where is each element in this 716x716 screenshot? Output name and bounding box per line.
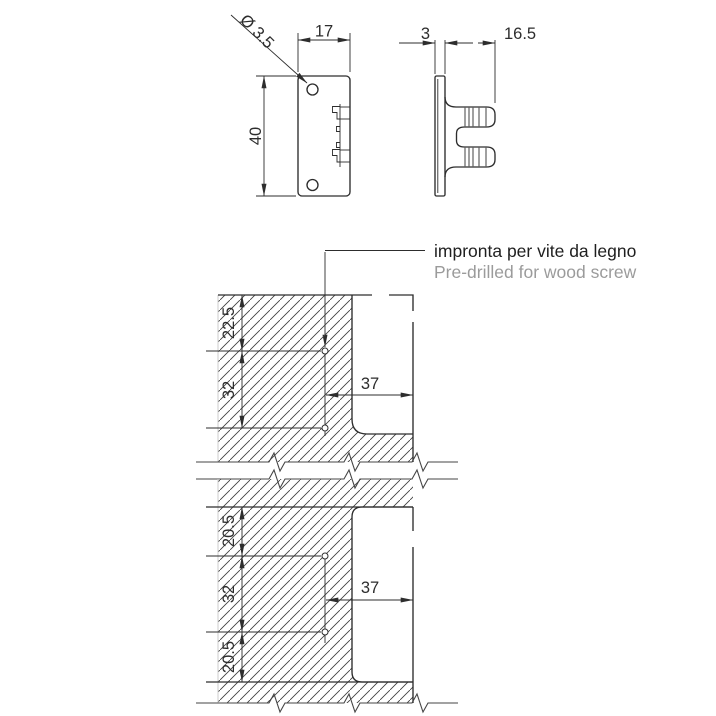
front-height-dimension: 40 xyxy=(247,76,296,196)
side-view: 3 16.5 xyxy=(399,25,536,196)
side-thickness-dimension: 3 xyxy=(399,25,473,74)
section-top-hatch xyxy=(218,295,413,462)
front-bottom-hole xyxy=(307,180,318,191)
screw-note-english: Pre-drilled for wood screw xyxy=(434,262,637,282)
section-top-cavity-outline xyxy=(352,295,413,434)
side-prongs-outline xyxy=(445,97,495,177)
front-body-outline xyxy=(298,76,350,196)
front-hole-label: Ø 3.5 xyxy=(236,11,277,52)
drawing-canvas: 17 40 Ø 3.5 xyxy=(0,0,716,716)
screw-imprint xyxy=(322,348,328,354)
section-top: 22.5 32 37 xyxy=(196,295,458,471)
screw-imprint xyxy=(322,425,328,431)
side-plate-outline xyxy=(435,76,445,196)
dim-37-label: 37 xyxy=(361,579,379,597)
dim-37-label: 37 xyxy=(361,375,379,393)
dim-32-label: 32 xyxy=(220,381,238,399)
front-height-label: 40 xyxy=(247,127,265,145)
section-bottom: 20.5 32 20.5 37 xyxy=(196,470,458,712)
front-top-hole xyxy=(307,84,318,95)
dim-22-5-label: 22.5 xyxy=(220,307,238,339)
screw-imprint xyxy=(322,629,328,635)
technical-drawing: 17 40 Ø 3.5 xyxy=(0,0,716,716)
side-depth-dimension: 16.5 xyxy=(478,25,536,103)
screw-note: impronta per vite da legno Pre-drilled f… xyxy=(325,241,637,347)
dim-32-label: 32 xyxy=(220,585,238,603)
screw-imprint xyxy=(322,553,328,559)
front-width-dimension: 17 xyxy=(298,23,350,73)
front-clip-detail xyxy=(333,104,350,167)
front-hole-dimension: Ø 3.5 xyxy=(231,11,307,83)
side-depth-label: 16.5 xyxy=(504,25,536,43)
screw-note-italian: impronta per vite da legno xyxy=(434,241,636,261)
front-view: 17 40 Ø 3.5 xyxy=(231,11,350,196)
side-thickness-label: 3 xyxy=(421,25,430,43)
front-width-label: 17 xyxy=(315,23,333,41)
section-bottom-hatch xyxy=(218,479,413,703)
dim-20-5-top-label: 20.5 xyxy=(220,515,238,547)
side-prong-ribs xyxy=(465,108,486,167)
dim-20-5-bottom-label: 20.5 xyxy=(220,641,238,673)
